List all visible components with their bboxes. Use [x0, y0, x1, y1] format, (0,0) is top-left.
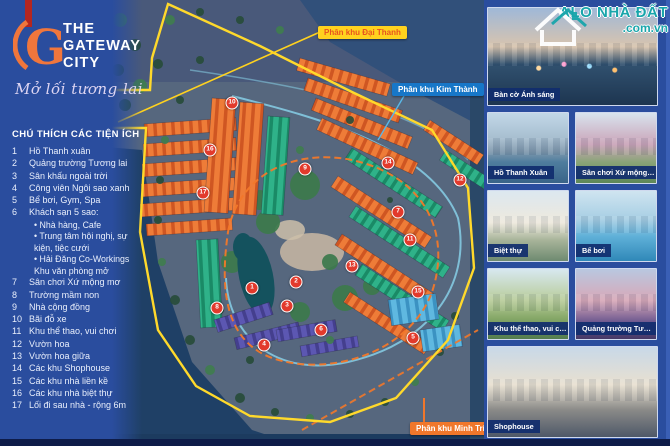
legend-item-15: 15Các khu nhà liền kề: [12, 376, 144, 388]
legend-heading: CHÚ THÍCH CÁC TIỆN ÍCH: [12, 129, 140, 140]
photo-caption: Bể bơi: [576, 244, 611, 257]
map-marker-12: 12: [454, 174, 467, 187]
legend-item-13: 13Vườn hoa giữa: [12, 351, 144, 363]
legend-item-12: 12Vườn hoa: [12, 339, 144, 351]
legend-item-number: 7: [12, 277, 29, 288]
legend-item-3: 3Sân khấu ngoài trời: [12, 171, 144, 183]
legend-item-number: 5: [12, 195, 29, 206]
photo-caption: Biệt thự: [488, 244, 528, 257]
photo-caption: Shophouse: [488, 420, 540, 433]
map-marker-10: 10: [226, 97, 239, 110]
map-marker-7: 7: [392, 206, 405, 219]
legend-item-number: 12: [12, 339, 29, 350]
legend-item-number: 3: [12, 171, 29, 182]
legend-item-label: Các khu nhà biệt thự: [29, 388, 144, 399]
legend-item-number: 14: [12, 363, 29, 374]
footer-bar: [0, 439, 670, 446]
legend-item-1: 1Hồ Thanh xuân: [12, 146, 144, 158]
legend-item-number: 11: [12, 326, 29, 337]
legend-subitem: Hải Đăng Co-Workings Khu văn phòng mở: [34, 254, 138, 277]
legend-item-5: 5Bể bơi, Gym, Spa: [12, 195, 144, 207]
legend-item-10: 10Bãi đỗ xe: [12, 314, 144, 326]
map-marker-5: 5: [407, 332, 420, 345]
sidebar-photo-card-3: Sân chơi Xứ mộng mơ: [575, 112, 657, 184]
svg-text:G: G: [25, 20, 65, 76]
legend-subitem: Trung tâm hội nghị, sự kiện, tiệc cưới: [34, 231, 138, 254]
legend-item-7: 7Sân chơi Xứ mộng mơ: [12, 277, 144, 289]
sidebar-photo-card-1: Bàn cờ Ánh sáng: [487, 7, 658, 106]
legend-item-label: Nhà cộng đồng: [29, 302, 144, 313]
legend-item-label: Các khu Shophouse: [29, 363, 144, 374]
photo-caption: Hồ Thanh Xuân: [488, 166, 554, 179]
legend-item-label: Lối đi sau nhà - rộng 6m: [29, 400, 144, 411]
logo-title-line3: CITY: [63, 55, 141, 72]
legend-item-label: Khách sạn 5 sao:: [29, 207, 144, 218]
map-marker-8: 8: [211, 302, 224, 315]
sidebar-photo-card-7: Quảng trường Tương lai: [575, 268, 657, 340]
photo-caption: Khu thể thao, vui chơi: [488, 322, 569, 335]
legend-item-number: 9: [12, 302, 29, 313]
legend-item-8: 8Trường mầm non: [12, 290, 144, 302]
legend-item-label: Sân khấu ngoài trời: [29, 171, 144, 182]
legend-item-label: Trường mầm non: [29, 290, 144, 301]
legend-item-6: 6Khách sạn 5 sao:: [12, 207, 144, 219]
legend-item-11: 11Khu thể thao, vui chơi: [12, 326, 144, 338]
sidebar-photo-card-6: Khu thể thao, vui chơi: [487, 268, 569, 340]
photo-sidebar: Bàn cờ Ánh sángHồ Thanh XuânSân chơi Xứ …: [484, 0, 670, 446]
legend-item-label: Bãi đỗ xe: [29, 314, 144, 325]
photo-caption: Sân chơi Xứ mộng mơ: [576, 166, 657, 179]
legend-item-number: 2: [12, 158, 29, 169]
map-marker-16: 16: [204, 144, 217, 157]
photo-caption: Bàn cờ Ánh sáng: [488, 88, 560, 101]
legend-item-2: 2Quảng trường Tương lai: [12, 158, 144, 170]
legend-list: 1Hồ Thanh xuân2Quảng trường Tương lai3Sâ…: [12, 146, 144, 413]
zone-label-dai-thanh: Phân khu Đại Thanh: [318, 26, 407, 39]
legend-item-label: Vườn hoa giữa: [29, 351, 144, 362]
legend-item-label: Quảng trường Tương lai: [29, 158, 144, 169]
legend-subitem: Nhà hàng, Cafe: [34, 220, 138, 232]
sidebar-photo-card-4: Biệt thự: [487, 190, 569, 262]
sidebar-photo-card-2: Hồ Thanh Xuân: [487, 112, 569, 184]
zone-label-minh-tri: Phân khu Minh Trí: [410, 422, 484, 435]
map-marker-17: 17: [197, 187, 210, 200]
map-marker-3: 3: [281, 300, 294, 313]
photo-caption: Quảng trường Tương lai: [576, 322, 657, 335]
logo-title-line1: THE: [63, 21, 141, 38]
legend-item-label: Các khu nhà liền kề: [29, 376, 144, 387]
map-marker-9: 9: [299, 163, 312, 176]
map-marker-14: 14: [382, 157, 395, 170]
legend-item-number: 16: [12, 388, 29, 399]
legend-item-4: 4Công viên Ngôi sao xanh: [12, 183, 144, 195]
legend-item-number: 4: [12, 183, 29, 194]
map-marker-15: 15: [412, 286, 425, 299]
legend-item-number: 17: [12, 400, 29, 411]
legend-item-label: Khu thể thao, vui chơi: [29, 326, 144, 337]
map-marker-11: 11: [404, 234, 417, 247]
legend-item-9: 9Nhà cộng đồng: [12, 302, 144, 314]
legend-item-number: 15: [12, 376, 29, 387]
legend-item-number: 1: [12, 146, 29, 157]
sidebar-photo-card-8: Shophouse: [487, 346, 658, 438]
legend-item-number: 6: [12, 207, 29, 218]
legend-item-label: Hồ Thanh xuân: [29, 146, 144, 157]
legend-item-16: 16Các khu nhà biệt thự: [12, 388, 144, 400]
legend-item-14: 14Các khu Shophouse: [12, 363, 144, 375]
gateway-city-masterplan-flyer: Phân khu Đại Thanh Phân khu Kim Thành Ph…: [0, 0, 670, 446]
logo-title: THE GATEWAY CITY: [63, 21, 141, 72]
map-marker-6: 6: [315, 324, 328, 337]
legend-item-label: Bể bơi, Gym, Spa: [29, 195, 144, 206]
legend-item-17: 17Lối đi sau nhà - rộng 6m: [12, 400, 144, 412]
map-marker-13: 13: [346, 260, 359, 273]
legend-item-label: Sân chơi Xứ mộng mơ: [29, 277, 144, 288]
logo-title-line2: GATEWAY: [63, 38, 141, 55]
legend-item-label: Vườn hoa: [29, 339, 144, 350]
legend-item-number: 10: [12, 314, 29, 325]
zone-label-kim-thanh: Phân khu Kim Thành: [392, 83, 484, 96]
legend-item-number: 13: [12, 351, 29, 362]
map-marker-2: 2: [290, 276, 303, 289]
logo-monogram-icon: G: [13, 14, 65, 76]
legend-item-number: 8: [12, 290, 29, 301]
logo-tagline: Mở lối tương lai: [15, 80, 143, 98]
sidebar-photo-card-5: Bể bơi: [575, 190, 657, 262]
legend-item-label: Công viên Ngôi sao xanh: [29, 183, 144, 194]
legend-panel: G THE GATEWAY CITY Mở lối tương lai CHÚ …: [0, 0, 160, 446]
map-marker-4: 4: [258, 339, 271, 352]
map-marker-1: 1: [246, 282, 259, 295]
